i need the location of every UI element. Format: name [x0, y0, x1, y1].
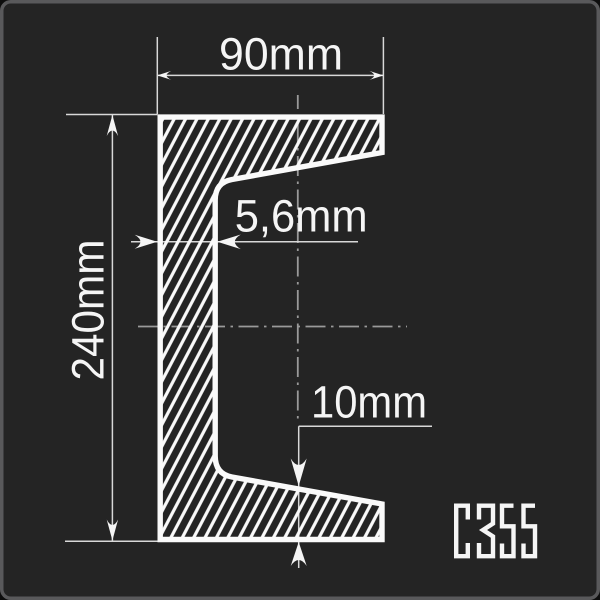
svg-text:90mm: 90mm	[219, 29, 343, 80]
svg-text:240mm: 240mm	[63, 240, 114, 381]
svg-text:10mm: 10mm	[311, 377, 427, 428]
svg-text:5,6mm: 5,6mm	[235, 191, 368, 242]
